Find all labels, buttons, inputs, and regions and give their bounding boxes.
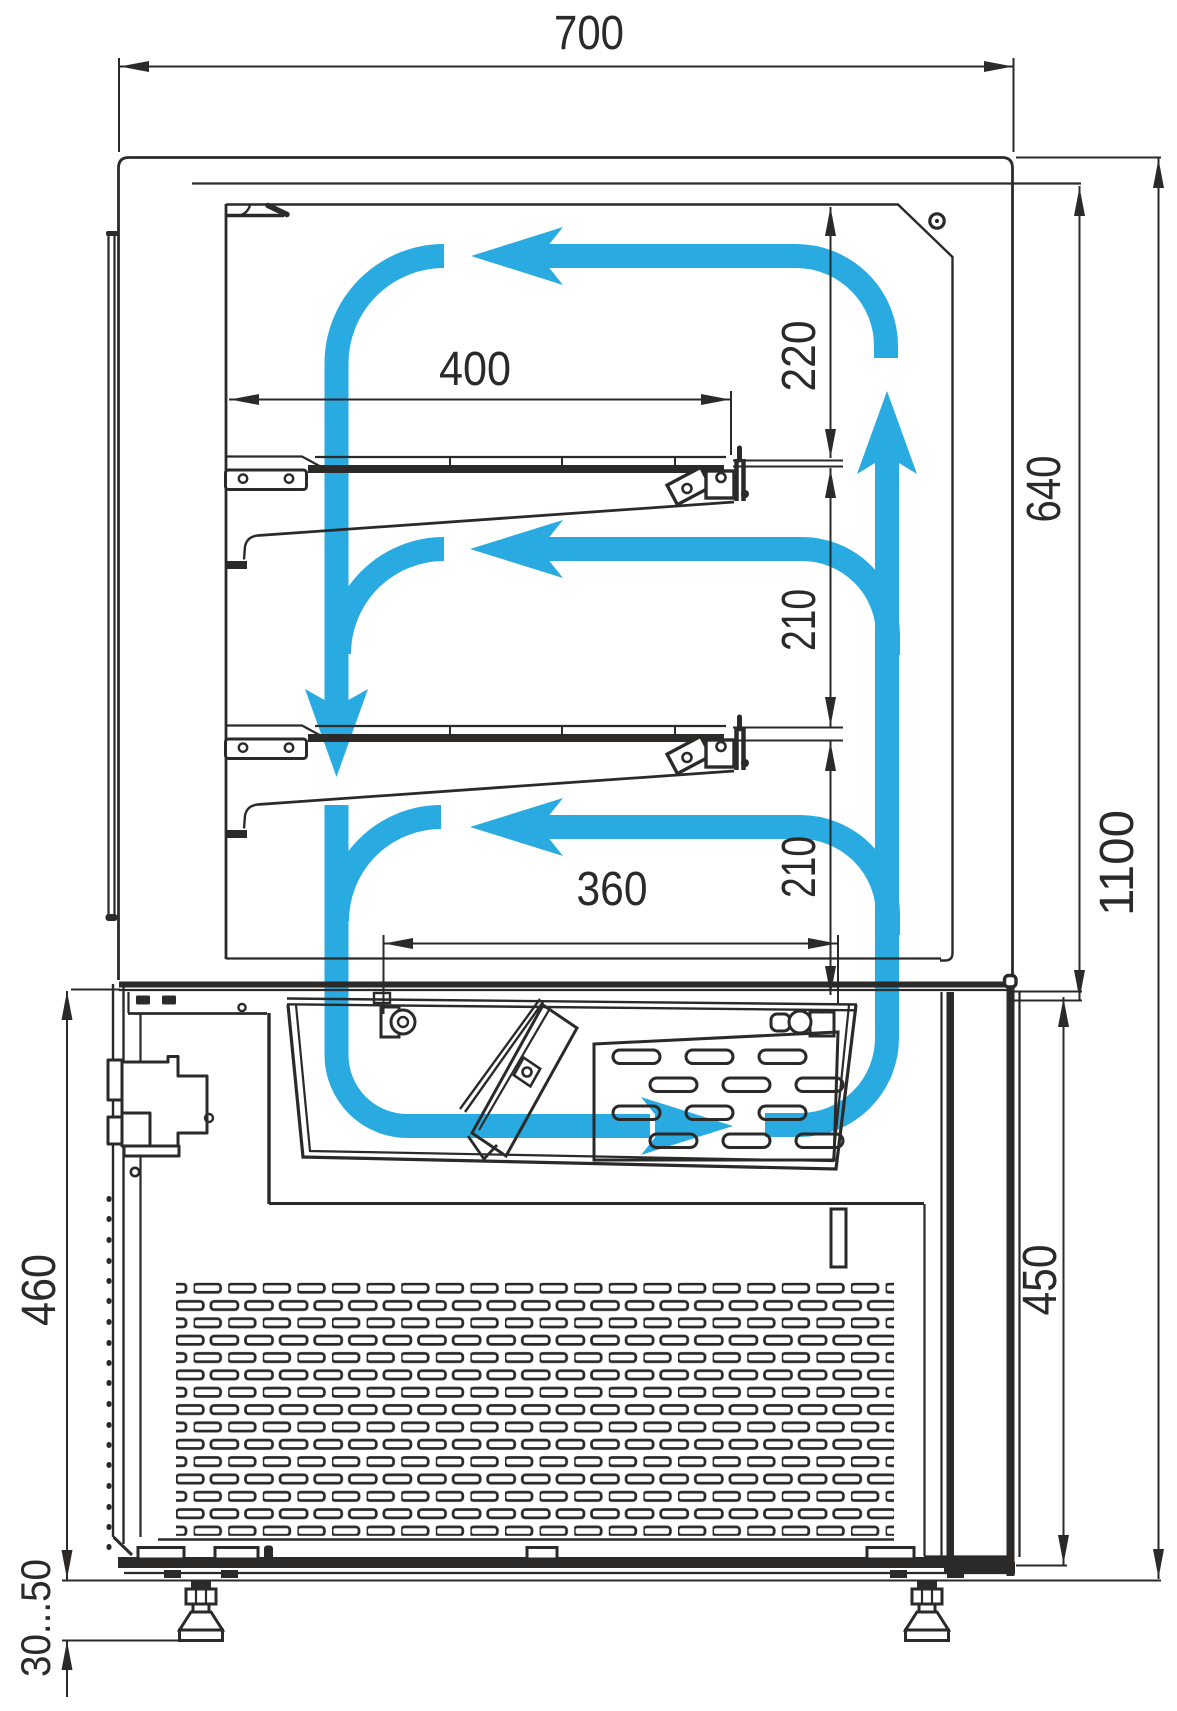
svg-text:640: 640 [1018, 456, 1071, 523]
svg-text:360: 360 [577, 863, 648, 916]
svg-text:700: 700 [554, 7, 624, 60]
svg-text:30...50: 30...50 [12, 1559, 59, 1677]
svg-text:400: 400 [439, 343, 511, 396]
svg-text:450: 450 [1014, 1245, 1067, 1316]
svg-text:210: 210 [773, 589, 826, 651]
svg-text:460: 460 [13, 1254, 66, 1326]
svg-text:220: 220 [773, 321, 826, 392]
svg-text:1100: 1100 [1091, 810, 1144, 916]
svg-text:210: 210 [773, 836, 826, 898]
